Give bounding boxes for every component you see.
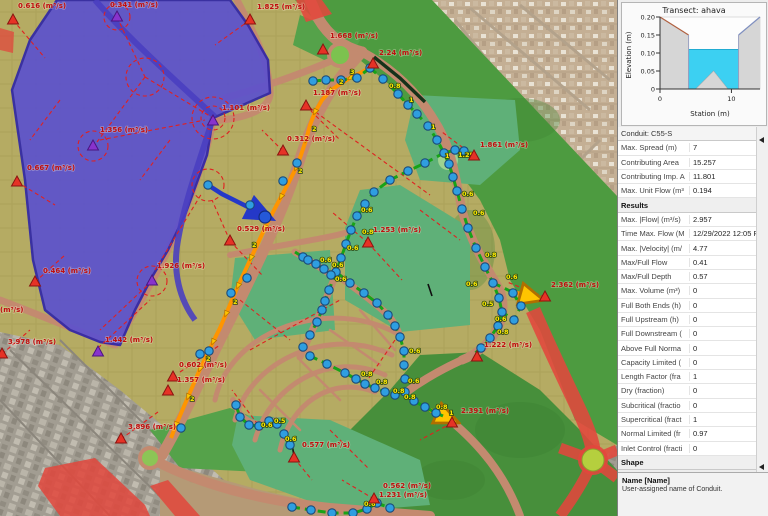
flow-rate-label: 0.529 (m³/s) [237, 225, 285, 233]
conduit-value-label: 2 [339, 78, 344, 86]
svg-text:0.20: 0.20 [641, 13, 655, 21]
junction-node[interactable] [386, 504, 394, 512]
property-row[interactable]: Normal Limited (fr0.97 [618, 427, 757, 441]
conduit-value-label: 0.6 [506, 273, 518, 281]
transect-chart: Transect: ahava 0.200.150.100.050010 Sta… [621, 2, 767, 126]
junction-node[interactable] [373, 299, 381, 307]
junction-node[interactable] [307, 506, 315, 514]
junction-node[interactable] [400, 347, 408, 355]
conduit-value-label: 0.6 [335, 275, 347, 283]
property-value[interactable]: 4.77 [690, 244, 757, 253]
property-label: Subcritical (fractio [618, 401, 690, 410]
flow-rate-label: 1.231 (m³/s) [379, 491, 427, 499]
junction-node[interactable] [384, 311, 392, 319]
junction-node[interactable] [379, 75, 387, 83]
junction-node-large[interactable] [259, 211, 271, 223]
conduit-value-label: 0.6 [285, 435, 297, 443]
flow-rate-label: 1.101 (m³/s) [222, 104, 270, 112]
flow-rate-label: 1.357 (m³/s) [177, 376, 225, 384]
junction-node[interactable] [346, 279, 354, 287]
junction-node[interactable] [306, 352, 314, 360]
flow-rate-label: 1.668 (m³/s) [330, 32, 378, 40]
property-row[interactable]: Contributing Imp. A11.801 [618, 170, 757, 184]
property-description: Name [Name] User-assigned name of Condui… [618, 472, 768, 516]
junction-node[interactable] [349, 509, 357, 516]
property-row[interactable]: Subcritical (fractio0 [618, 399, 757, 413]
svg-text:0.05: 0.05 [641, 67, 655, 75]
svg-text:0: 0 [658, 95, 662, 103]
junction-node[interactable] [449, 173, 457, 181]
property-row[interactable]: Contributing Area15.257 [618, 156, 757, 170]
transect-plot: 0.200.150.100.050010 [641, 13, 760, 103]
property-value[interactable]: 0 [690, 315, 757, 324]
junction-node[interactable] [243, 274, 251, 282]
property-label: Inlet Control (fracti [618, 444, 690, 453]
svg-text:0: 0 [651, 85, 655, 93]
category-row[interactable]: Results [618, 198, 757, 212]
property-value[interactable]: 1 [690, 372, 757, 381]
property-row[interactable]: Max. |Flow| (m³/s)2.957 [618, 213, 757, 227]
junction-node[interactable] [236, 413, 244, 421]
x-axis-label: Station (m) [690, 110, 730, 118]
flow-rate-label: 0.562 (m³/s) [383, 482, 431, 490]
property-value[interactable]: 0 [690, 444, 757, 453]
conduit-value-label: 0.6 [466, 280, 478, 288]
junction-node[interactable] [394, 90, 402, 98]
conduit-value-label: 1 [445, 152, 450, 160]
flow-rate-label: 0.341 (m³/s) [110, 1, 158, 9]
junction-node[interactable] [323, 360, 331, 368]
property-label: Normal Limited (fr [618, 429, 690, 438]
flow-rate-label: (m³/s) [0, 306, 23, 314]
junction-node[interactable] [309, 77, 317, 85]
property-value[interactable]: 0 [690, 329, 757, 338]
flow-rate-label: 1.253 (m³/s) [373, 226, 421, 234]
conduit-value-label: 0.5 [274, 417, 286, 425]
property-row[interactable]: Max. Spread (m)7 [618, 141, 757, 155]
flow-rate-label: 1.356 (m³/s) [100, 126, 148, 134]
property-label: Capacity Limited ( [618, 358, 690, 367]
flow-rate-label: 1.825 (m³/s) [257, 3, 305, 11]
conduit-value-label: 0.6 [462, 190, 474, 198]
property-label: Max. |Flow| (m³/s) [618, 215, 690, 224]
property-label: Above Full Norma [618, 344, 690, 353]
property-label: Supercritical (fract [618, 415, 690, 424]
flow-rate-label: 3.978 (m³/s) [8, 338, 56, 346]
property-row[interactable]: Dry (fraction)0 [618, 384, 757, 398]
property-label: Dry (fraction) [618, 386, 690, 395]
property-label: Full Both Ends (h) [618, 301, 690, 310]
property-value[interactable]: 2.957 [690, 215, 757, 224]
junction-node[interactable] [347, 226, 355, 234]
flow-rate-label: 0.602 (m³/s) [179, 361, 227, 369]
property-row[interactable]: Full Upstream (h)0 [618, 313, 757, 327]
junction-node[interactable] [352, 375, 360, 383]
junction-node[interactable] [293, 159, 301, 167]
junction-node[interactable] [421, 403, 429, 411]
property-grid[interactable]: Conduit: C55-SMax. Spread (m)7Contributi… [618, 127, 757, 470]
flow-rate-label: 0.667 (m³/s) [27, 164, 75, 172]
junction-node[interactable] [177, 424, 185, 432]
junction-node[interactable] [445, 160, 453, 168]
property-label: Full Upstream (h) [618, 315, 690, 324]
property-value[interactable]: 0 [690, 286, 757, 295]
property-value[interactable]: 0.97 [690, 429, 757, 438]
junction-node[interactable] [495, 294, 503, 302]
junction-node[interactable] [321, 297, 329, 305]
junction-node[interactable] [453, 187, 461, 195]
collapse-arrow-icon[interactable] [759, 137, 764, 143]
junction-node[interactable] [299, 343, 307, 351]
conduit-value-label: 0.6 [495, 315, 507, 323]
junction-node[interactable] [413, 110, 421, 118]
property-row[interactable]: Max. |Velocity| (m/4.77 [618, 241, 757, 255]
junction-node[interactable] [204, 181, 212, 189]
property-label: Max. |Velocity| (m/ [618, 244, 690, 253]
junction-node[interactable] [361, 380, 369, 388]
conduit-value-label: 2 [298, 167, 303, 175]
property-label: Max. Spread (m) [618, 143, 690, 152]
junction-node[interactable] [481, 263, 489, 271]
junction-node[interactable] [288, 503, 296, 511]
junction-node[interactable] [510, 316, 518, 324]
junction-node[interactable] [464, 224, 472, 232]
junction-node[interactable] [245, 421, 253, 429]
junction-node[interactable] [360, 289, 368, 297]
flow-rate-label: 0.312 (m³/s) [287, 135, 335, 143]
junction-node[interactable] [313, 318, 321, 326]
junction-node[interactable] [472, 244, 480, 252]
junction-node[interactable] [489, 279, 497, 287]
conduit-value-label: 0.6 [347, 244, 359, 252]
junction-node[interactable] [328, 509, 336, 516]
property-label: Full Downstream ( [618, 329, 690, 338]
collapse-arrow-icon[interactable] [759, 464, 764, 470]
property-row[interactable]: Max/Full Depth0.57 [618, 270, 757, 284]
conduit-value-label: 0.6 [409, 347, 421, 355]
junction-node[interactable] [327, 271, 335, 279]
junction-node[interactable] [325, 286, 333, 294]
conduit-value-label: 0.6 [320, 256, 332, 264]
map-canvas[interactable]: 322222220.81111.250.60.60.80.60.60.50.60… [0, 0, 617, 516]
property-row[interactable]: Inlet Control (fracti0 [618, 442, 757, 456]
property-row[interactable]: Capacity Limited (0 [618, 356, 757, 370]
conduit-value-label: 0.8 [485, 251, 497, 259]
junction-node[interactable] [279, 177, 287, 185]
svg-text:0.10: 0.10 [641, 49, 655, 57]
junction-node[interactable] [391, 322, 399, 330]
conduit-value-label: 0.8 [497, 328, 509, 336]
junction-node[interactable] [227, 289, 235, 297]
property-row[interactable]: Max. Volume (m³)0 [618, 284, 757, 298]
property-value[interactable]: 15.257 [690, 158, 757, 167]
property-label: Length Factor (fra [618, 372, 690, 381]
flow-rate-label: 1.187 (m³/s) [313, 89, 361, 97]
conduit-value-label: 0.5 [482, 300, 494, 308]
svg-text:0.15: 0.15 [641, 31, 655, 39]
junction-node[interactable] [312, 260, 320, 268]
conduit-value-label: 0.8 [361, 370, 373, 378]
flow-rate-label: 3.896 (m³/s) [128, 423, 176, 431]
junction-node[interactable] [304, 256, 312, 264]
junction-node[interactable] [381, 388, 389, 396]
property-value[interactable]: 11.801 [690, 172, 757, 181]
conduit-value-label: 0.8 [376, 378, 388, 386]
description-title: Name [Name] [622, 476, 764, 485]
property-value[interactable]: 0 [690, 301, 757, 310]
junction-node[interactable] [404, 167, 412, 175]
property-label: Max/Full Flow [618, 258, 690, 267]
junction-node[interactable] [400, 361, 408, 369]
grid-scrollbar[interactable] [756, 127, 768, 472]
property-label: Time Max. Flow (M [618, 229, 690, 238]
junction-node[interactable] [458, 205, 466, 213]
property-label: Max. Volume (m³) [618, 286, 690, 295]
category-row[interactable]: Shape [618, 456, 757, 470]
conduit-value-label: 0.8 [389, 82, 401, 90]
property-row[interactable]: Length Factor (fra1 [618, 370, 757, 384]
flow-rate-label: 2.391 (m³/s) [461, 407, 509, 415]
junction-node[interactable] [205, 347, 213, 355]
y-axis-label: Elevation (m) [625, 31, 633, 78]
conduit-value-label: 1 [431, 123, 436, 131]
conduit-value-label: 0.6 [361, 206, 373, 214]
junction-node[interactable] [322, 76, 330, 84]
junction-node[interactable] [232, 401, 240, 409]
conduit-value-label: 2 [252, 241, 257, 249]
junction-node[interactable] [306, 331, 314, 339]
junction-node[interactable] [341, 369, 349, 377]
conduit-value-label: 1 [409, 96, 414, 104]
flow-rate-label: 2.362 (m³/s) [551, 281, 599, 289]
junction-node[interactable] [517, 302, 525, 310]
junction-node[interactable] [421, 159, 429, 167]
junction-node[interactable] [353, 212, 361, 220]
junction-node[interactable] [318, 306, 326, 314]
flow-rate-label: 1.861 (m³/s) [480, 141, 528, 149]
conduit-value-label: 1 [449, 409, 454, 417]
flow-rate-label: 1.926 (m³/s) [157, 262, 205, 270]
property-label: Contributing Imp. A [618, 172, 690, 181]
property-value[interactable]: 0 [690, 344, 757, 353]
flow-rate-label: 0.464 (m³/s) [43, 267, 91, 275]
property-row[interactable]: Above Full Norma0 [618, 341, 757, 355]
junction-node[interactable] [433, 136, 441, 144]
app-window: 322222220.81111.250.60.60.80.60.60.50.60… [0, 0, 768, 516]
property-value[interactable]: 0 [690, 401, 757, 410]
conduit-value-label: 2 [190, 395, 195, 403]
description-text: User-assigned name of Conduit. [622, 486, 764, 493]
flow-rate-label: 1.442 (m³/s) [105, 336, 153, 344]
property-value[interactable]: 7 [690, 143, 757, 152]
junction-node[interactable] [320, 265, 328, 273]
map-viewport[interactable]: 322222220.81111.250.60.60.80.60.60.50.60… [0, 0, 618, 516]
property-value[interactable]: 0 [690, 386, 757, 395]
transect-title: Transect: ahava [661, 6, 725, 15]
conduit-value-label: 0.6 [332, 261, 344, 269]
conduit-value-label: 0.8 [436, 403, 448, 411]
property-label: Max. Unit Flow (m³ [618, 186, 690, 195]
conduit-value-label: 0.6 [473, 209, 485, 217]
property-label: Max/Full Depth [618, 272, 690, 281]
junction-node[interactable] [246, 201, 254, 209]
conduit-value-label: 0.8 [404, 393, 416, 401]
svg-text:10: 10 [727, 95, 735, 103]
property-value[interactable]: 0 [690, 358, 757, 367]
property-value[interactable]: 0.41 [690, 258, 757, 267]
property-row[interactable]: Max/Full Flow0.41 [618, 256, 757, 270]
conduit-value-label: 2 [312, 125, 317, 133]
junction-node[interactable] [396, 333, 404, 341]
flow-rate-label: 0.577 (m³/s) [302, 441, 350, 449]
property-label: Contributing Area [618, 158, 690, 167]
property-value[interactable]: 1 [690, 415, 757, 424]
flow-rate-label: 2.24 (m³/s) [379, 49, 422, 57]
property-row[interactable]: Supercritical (fract1 [618, 413, 757, 427]
conduit-value-label: 0.6 [408, 377, 420, 385]
property-value[interactable]: 0.57 [690, 272, 757, 281]
conduit-value-label: 0.6 [261, 421, 273, 429]
junction-node[interactable] [196, 350, 204, 358]
properties-panel: Transect: ahava 0.200.150.100.050010 Sta… [618, 0, 768, 516]
junction-node[interactable] [386, 176, 394, 184]
property-row[interactable]: Full Both Ends (h)0 [618, 299, 757, 313]
conduit-value-label: 3 [350, 68, 355, 76]
flow-rate-label: 0.616 (m³/s) [18, 2, 66, 10]
category-row[interactable]: Conduit: C55-S [618, 127, 757, 141]
property-row[interactable]: Full Downstream (0 [618, 327, 757, 341]
conduit-value-label: 2 [233, 298, 238, 306]
property-value[interactable]: 0.194 [690, 186, 757, 195]
property-row[interactable]: Max. Unit Flow (m³0.194 [618, 184, 757, 198]
flow-rate-label: 1.222 (m³/s) [484, 341, 532, 349]
property-row[interactable]: Time Max. Flow (M12/29/2022 12:05 PM [618, 227, 757, 241]
junction-node[interactable] [509, 289, 517, 297]
junction-node[interactable] [370, 188, 378, 196]
property-value[interactable]: 12/29/2022 12:05 PM [690, 229, 757, 238]
